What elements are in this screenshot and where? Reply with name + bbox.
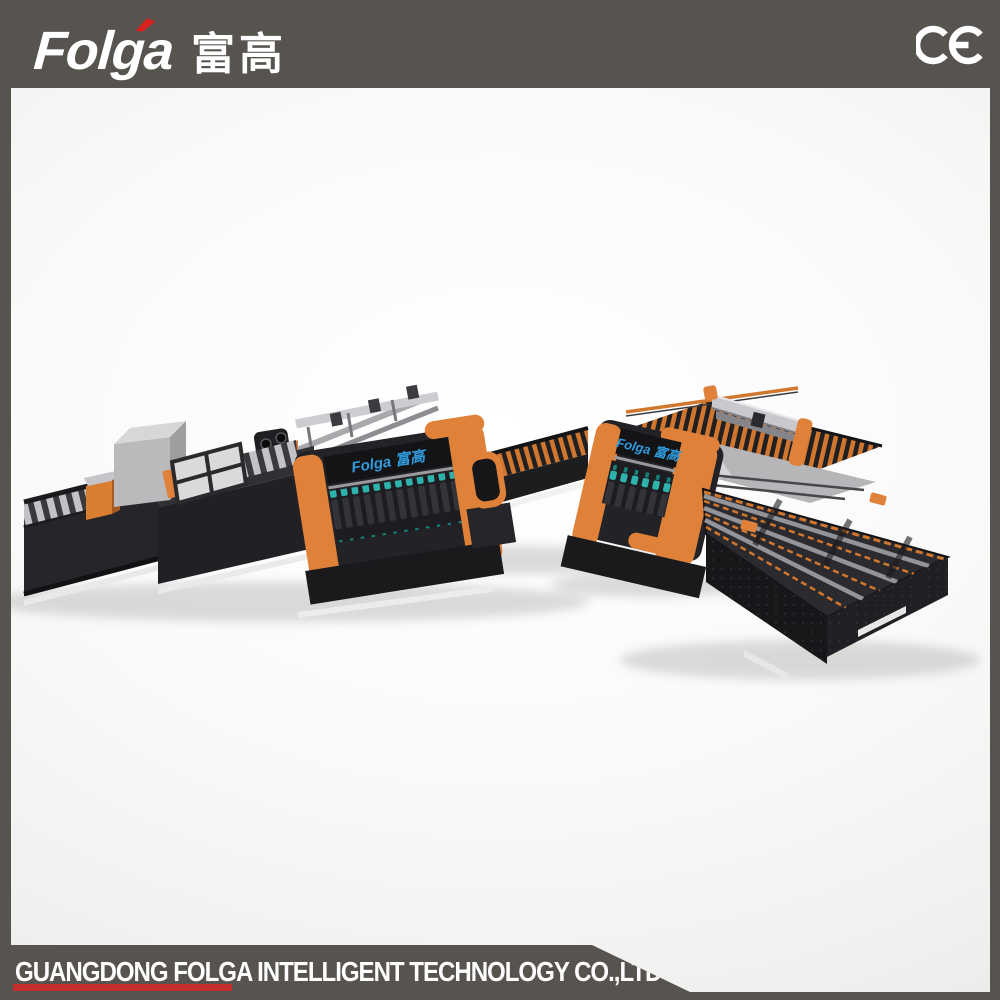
machine-2-name-band <box>615 428 681 467</box>
machine-1-label: Folga 富高 <box>350 447 429 477</box>
breakout-table <box>703 489 948 680</box>
footer-underline <box>13 984 232 991</box>
edging-machine-2: Folga 富高 <box>561 410 735 598</box>
product-image-panel: Folga 富高 <box>11 88 990 992</box>
machine-1-spindles <box>329 472 462 543</box>
stacking-table <box>114 421 314 594</box>
conveyor-stopper <box>84 471 120 520</box>
loading-conveyor <box>24 464 176 606</box>
machine-2-label: Folga 富高 <box>615 435 683 465</box>
glass-sheets <box>172 444 246 503</box>
conveyor-end-cap <box>458 449 516 549</box>
glass-stack-cover <box>114 421 186 507</box>
brand-logo-chinese: 富高 <box>191 18 287 82</box>
transfer-conveyor <box>452 428 588 524</box>
brand-logo: Folga 富高 <box>34 18 287 82</box>
footer-band: GUANGDONG FOLGA INTELLIGENT TECHNOLOGY C… <box>0 945 690 992</box>
ce-mark-glyphs <box>916 18 986 72</box>
machine-2-spindles <box>602 460 674 517</box>
tilting-loader-frame <box>253 385 438 473</box>
cutting-bridge <box>626 385 814 467</box>
ce-mark-icon: CE <box>916 18 986 72</box>
edging-machine-1: Folga 富高 <box>285 413 508 604</box>
brand-logo-text: Folga <box>32 20 175 82</box>
production-line-render: Folga 富高 <box>11 88 1000 1000</box>
floor-shadows <box>11 546 980 680</box>
cutting-line-conveyor <box>636 402 882 503</box>
machine-1-name-band <box>324 437 453 484</box>
poster: Folga 富高 CE <box>0 0 1000 1000</box>
